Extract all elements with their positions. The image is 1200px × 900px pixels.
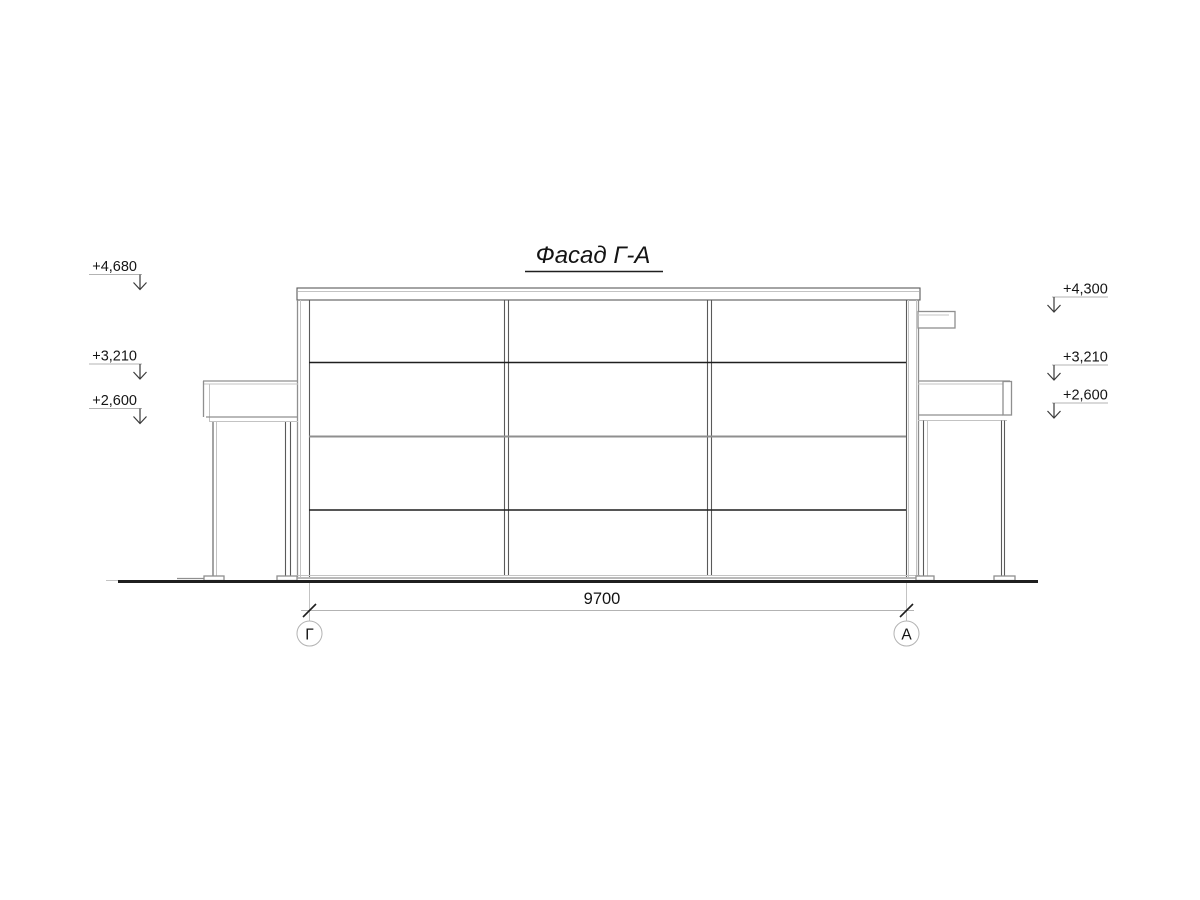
right-canopy-edge-cap (1003, 382, 1012, 416)
axis-bubble-left: Г (297, 621, 322, 646)
elevation-value: +2,600 (92, 393, 137, 409)
drawing-sheet: Фасад Г-А (0, 0, 1200, 900)
right-canopy-post-outer (1002, 421, 1005, 577)
right-canopy (916, 381, 1015, 581)
elevation-mark-right-2: +3,210 (1048, 350, 1109, 381)
elevation-mark-right-3: +2,600 (1048, 388, 1109, 419)
right-post-base-plate-1 (916, 576, 934, 581)
elevation-mark-left-3: +2,600 (89, 393, 147, 424)
parapet-band (297, 288, 920, 300)
elevation-value: +4,680 (92, 259, 137, 275)
drawing-title-block: Фасад Г-А (525, 242, 663, 272)
mullion-2 (708, 300, 712, 576)
elevation-mark-left-2: +3,210 (89, 349, 147, 380)
axis-label-left: Г (305, 627, 314, 644)
ground-line (106, 581, 1038, 582)
elevation-mark-left-1: +4,680 (89, 259, 147, 290)
left-post-base-plate-2 (277, 576, 297, 581)
left-post-base-plate-1 (204, 576, 224, 581)
left-canopy-post-inner (286, 422, 291, 576)
dimension-string: 9700 Г А (297, 583, 919, 646)
elevation-value: +3,210 (1063, 350, 1108, 366)
dimension-value: 9700 (584, 590, 621, 608)
building-facade (297, 288, 955, 578)
drawing-title: Фасад Г-А (536, 242, 651, 269)
elevation-value: +3,210 (92, 349, 137, 365)
right-post-base-plate-2 (994, 576, 1015, 581)
elevation-mark-right-1: +4,300 (1048, 282, 1109, 313)
roof-protrusion (918, 312, 955, 329)
axis-bubble-right: А (894, 621, 919, 646)
axis-label-right: А (901, 627, 912, 644)
elevation-value: +2,600 (1063, 388, 1108, 404)
facade-elevation-drawing: Фасад Г-А (0, 0, 1200, 900)
left-canopy (177, 381, 298, 581)
elevation-marks-right: +4,300 +3,210 +2,600 (1048, 282, 1109, 419)
right-canopy-post-inner (924, 421, 928, 577)
left-canopy-post-outer (213, 422, 217, 576)
elevation-marks-left: +4,680 +3,210 +2,600 (89, 259, 147, 424)
mullion-1 (505, 300, 509, 576)
elevation-value: +4,300 (1063, 282, 1108, 298)
